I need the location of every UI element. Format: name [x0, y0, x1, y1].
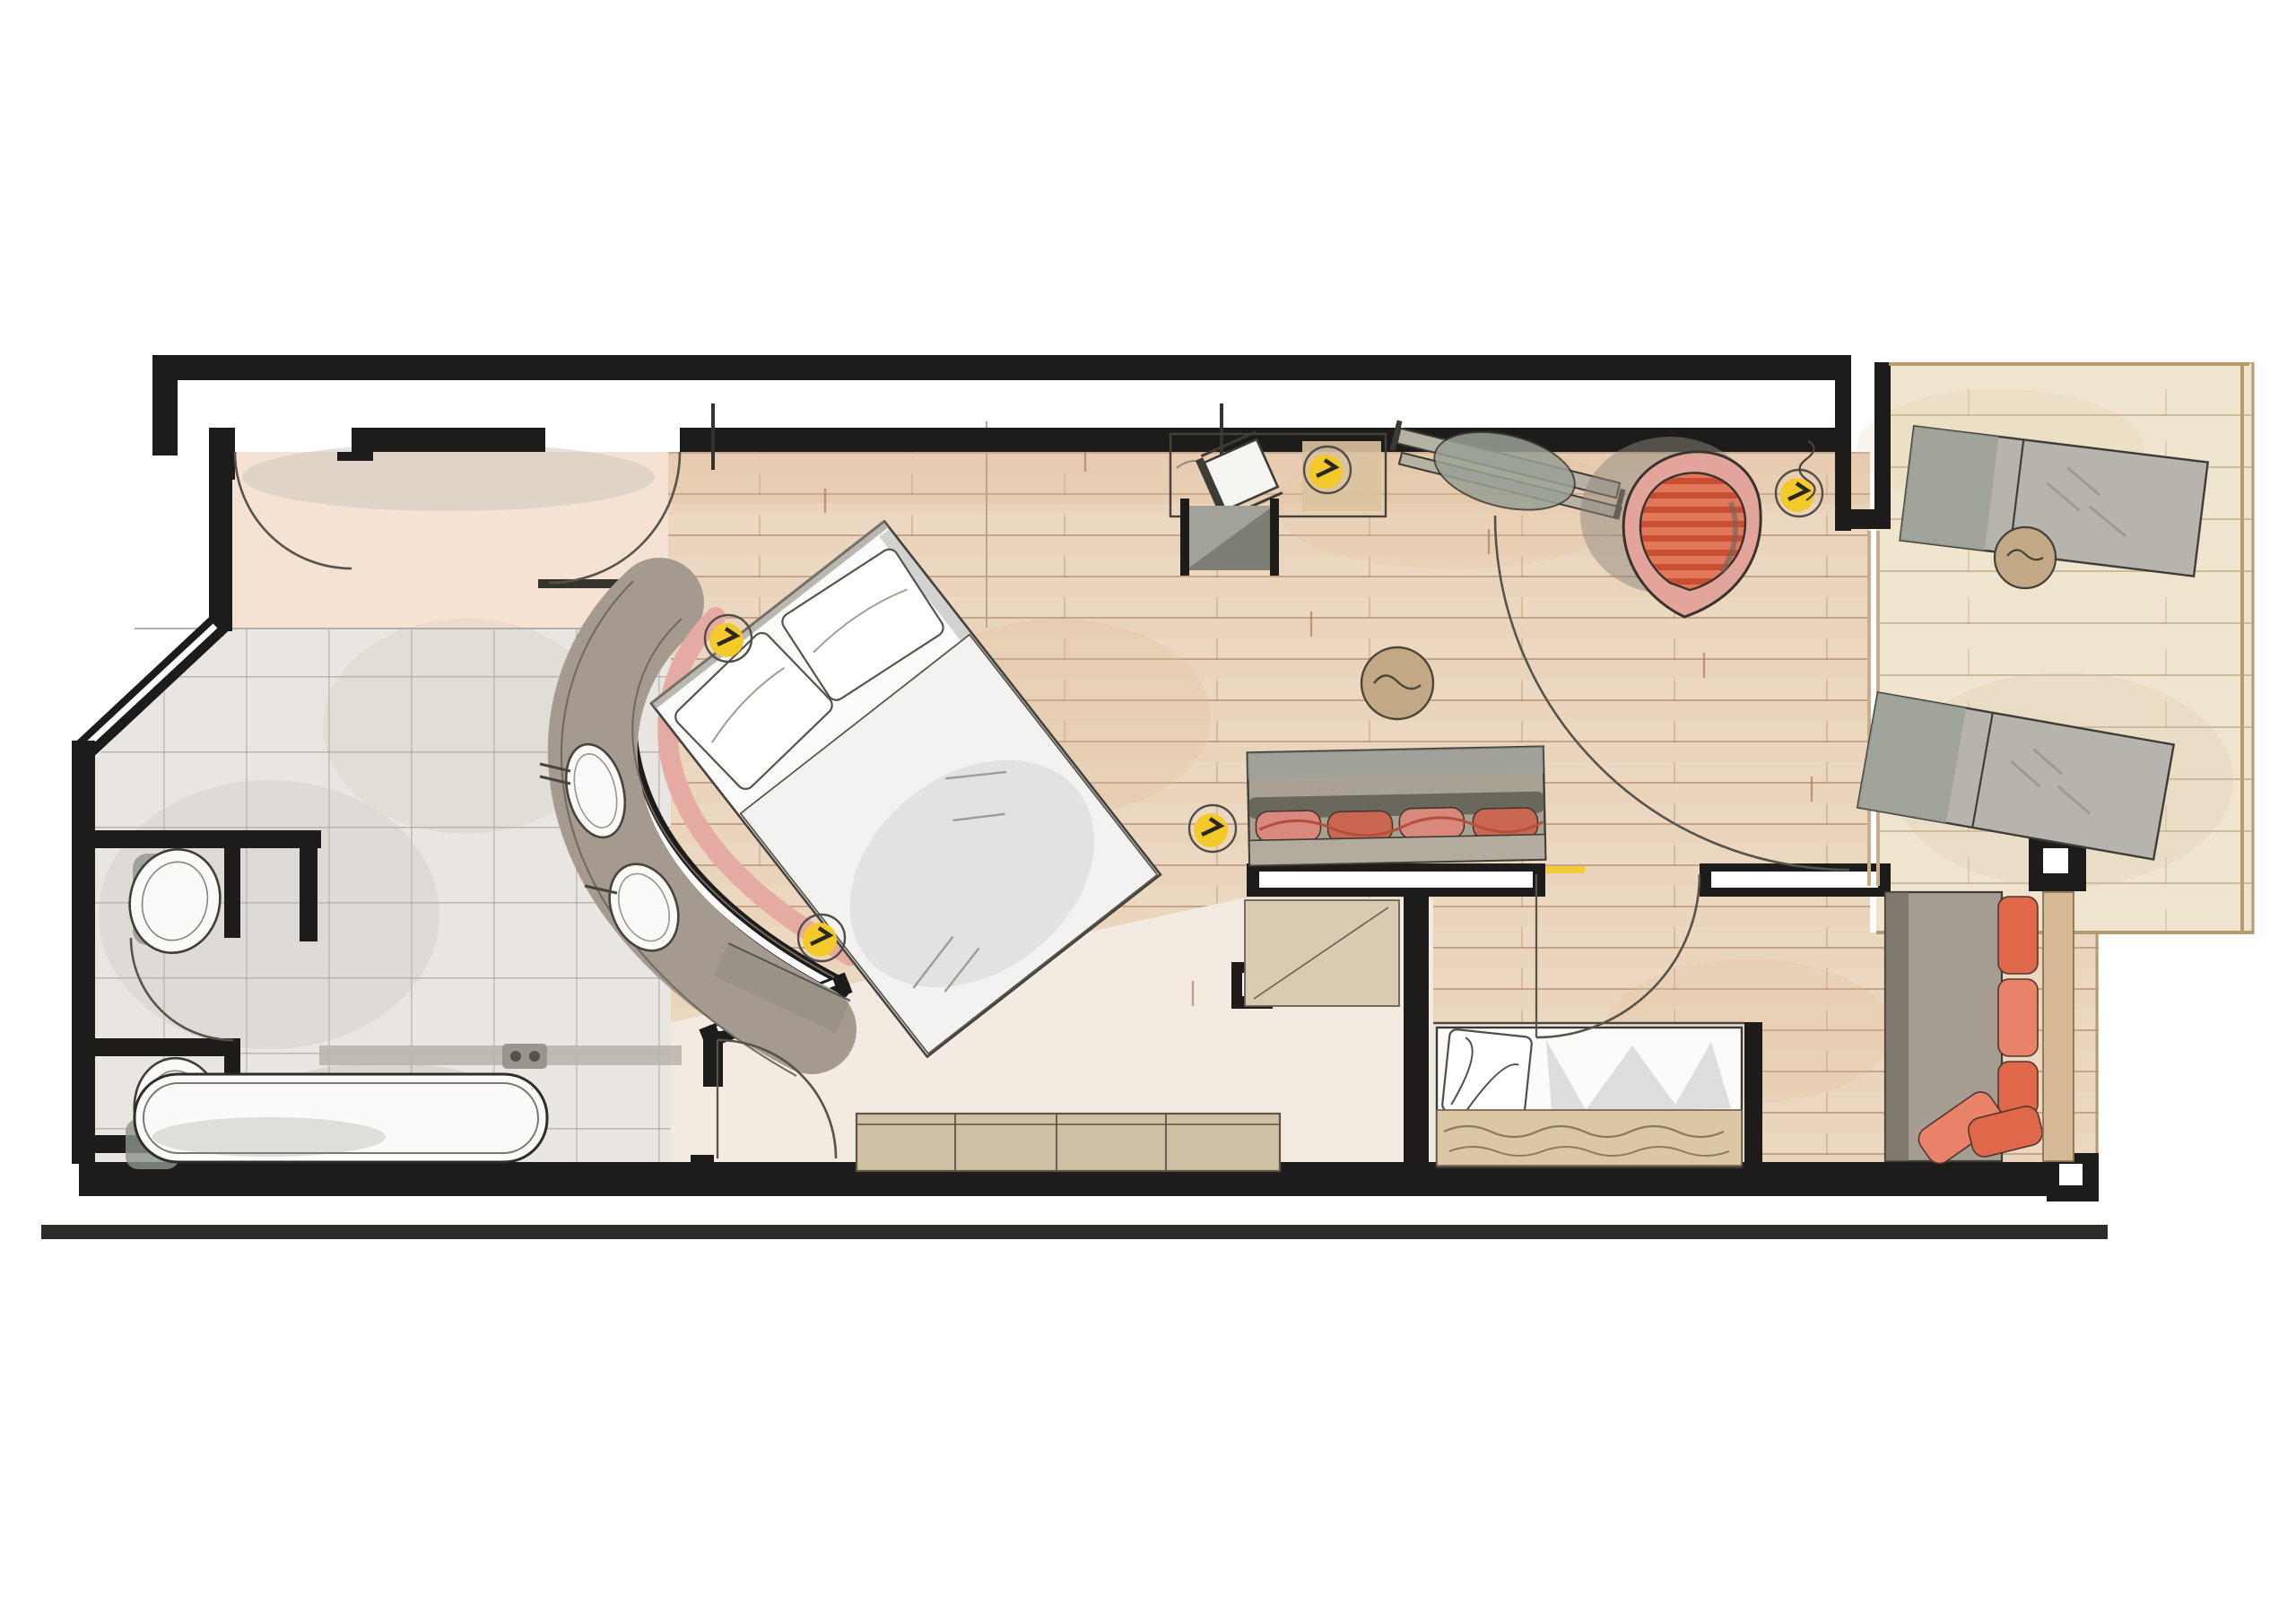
outer-left-wall — [72, 741, 95, 1164]
bottom-facade-line — [41, 1225, 2108, 1239]
wc-inner-wall-a — [224, 848, 240, 938]
window-line-a — [1867, 531, 1871, 886]
alcove-cushion-1 — [1998, 897, 2038, 974]
floor-plan-drawing — [0, 0, 2296, 1622]
sofa — [1248, 747, 1546, 866]
single-bed-blanket — [1437, 1110, 1742, 1166]
bathtub-knob-b — [529, 1051, 540, 1062]
wc-top-wall — [95, 830, 321, 848]
wc-right-stub — [300, 848, 317, 941]
living-divider-core — [1259, 872, 1533, 888]
dressing-door-stub — [691, 1155, 714, 1196]
sun-lounger-upper-head — [1900, 426, 1999, 551]
door-leaf-highlight — [1545, 866, 1585, 873]
bath-shelf — [319, 1045, 682, 1065]
terrace-passage-left-jamb — [1835, 362, 1851, 531]
inner-top-wall-a — [352, 428, 545, 452]
floor-plan-page — [0, 0, 2296, 1622]
sofa-seat-front — [1249, 835, 1546, 866]
side-table — [1361, 647, 1433, 719]
wall-tick-1 — [711, 403, 715, 470]
niche-left-wall — [1404, 894, 1429, 1166]
entry-jamb-stub — [337, 452, 373, 461]
alcove-sofa-edge — [1885, 892, 1909, 1161]
niche-right-wall — [1744, 1022, 1762, 1164]
alcove-furniture — [1885, 892, 2074, 1168]
column-alcove-bottom-core — [2059, 1164, 2083, 1185]
terrace-table — [1995, 527, 2056, 588]
right-divider-core — [1711, 872, 1878, 888]
outer-corridor-wall — [152, 355, 1851, 380]
stool-rail-left — [1180, 499, 1189, 576]
alcove-cushion-2 — [1998, 979, 2038, 1056]
single-bed-pillow — [1441, 1028, 1532, 1119]
hall-left-wall — [209, 428, 232, 607]
terrace-passage-right-jamb — [1874, 362, 1891, 516]
single-bed — [1437, 1028, 1742, 1167]
hall-wash-1 — [242, 443, 655, 511]
single-bed-pillow-shape — [1441, 1028, 1532, 1119]
column-alcove-top-core — [2043, 848, 2068, 873]
bathtub-faucet — [502, 1044, 547, 1069]
stool-rail-right — [1270, 499, 1279, 576]
outer-wall-left-stub — [152, 355, 178, 455]
alcove-console — [2043, 892, 2074, 1161]
terrace-passage-sill — [1835, 509, 1891, 529]
wc-divider-wall — [95, 1038, 240, 1056]
bathtub-knob-a — [510, 1051, 521, 1062]
sideboard — [857, 1114, 1280, 1171]
bathtub-water-wash — [152, 1117, 386, 1157]
